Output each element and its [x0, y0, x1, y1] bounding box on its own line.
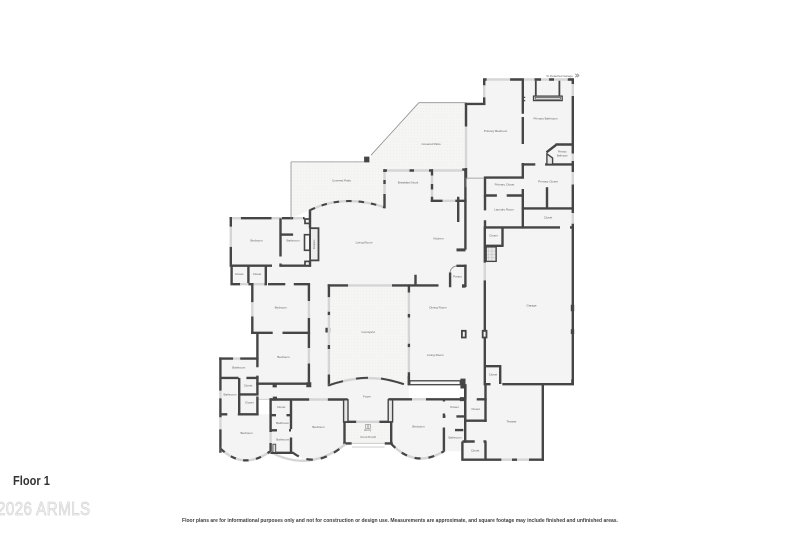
- svg-text:Closet: Closet: [253, 272, 262, 276]
- svg-text:Covered Patio: Covered Patio: [332, 179, 351, 183]
- svg-text:Closet: Closet: [245, 401, 254, 405]
- svg-text:Entry: Entry: [364, 428, 372, 432]
- svg-text:Pantry: Pantry: [453, 275, 462, 279]
- svg-text:Bathroom: Bathroom: [232, 365, 246, 369]
- svg-text:Bedroom: Bedroom: [412, 425, 425, 429]
- svg-text:Closet: Closet: [471, 448, 480, 452]
- svg-text:Bathroom: Bathroom: [276, 438, 290, 442]
- svg-text:Primary Bedroom: Primary Bedroom: [484, 129, 508, 133]
- svg-text:Theater: Theater: [506, 419, 516, 423]
- svg-text:Closet: Closet: [277, 405, 286, 409]
- svg-text:Closet: Closet: [489, 373, 498, 377]
- svg-text:Bathroom: Bathroom: [448, 436, 462, 440]
- svg-text:Closet: Closet: [544, 216, 553, 220]
- svg-text:Bedroom: Bedroom: [250, 239, 263, 243]
- svg-text:Bathroom: Bathroom: [223, 393, 237, 397]
- svg-text:Foyer: Foyer: [363, 394, 371, 398]
- svg-text:Living Room: Living Room: [427, 353, 444, 357]
- svg-text:Garage: Garage: [526, 304, 536, 308]
- svg-text:Bathroom: Bathroom: [276, 421, 290, 425]
- svg-text:Breakfast Nook: Breakfast Nook: [398, 181, 419, 185]
- svg-text:Closet: Closet: [244, 383, 253, 387]
- svg-text:Closet: Closet: [489, 233, 498, 237]
- svg-text:Bedroom: Bedroom: [277, 355, 290, 359]
- svg-text:Courtyard: Courtyard: [361, 330, 375, 334]
- svg-text:Primary Closet: Primary Closet: [538, 180, 558, 184]
- svg-text:Covered Patio: Covered Patio: [421, 142, 440, 146]
- svg-text:Bedroom: Bedroom: [275, 306, 288, 310]
- svg-text:Kitchen: Kitchen: [433, 237, 443, 241]
- svg-text:Bedroom: Bedroom: [241, 431, 254, 435]
- svg-text:Bathroom: Bathroom: [557, 155, 568, 158]
- svg-text:Front Porch: Front Porch: [360, 435, 376, 439]
- svg-text:To Detached Garage: To Detached Garage: [546, 74, 573, 78]
- svg-text:Laundry Room: Laundry Room: [494, 208, 514, 212]
- svg-text:Primary Bathroom: Primary Bathroom: [534, 117, 559, 121]
- svg-text:Closet: Closet: [235, 272, 244, 276]
- svg-text:Bedroom: Bedroom: [312, 425, 325, 429]
- svg-text:Closet: Closet: [450, 405, 459, 409]
- svg-text:Fireplace: Fireplace: [313, 239, 316, 249]
- svg-text:Living Room: Living Room: [356, 241, 373, 245]
- svg-text:Primary: Primary: [558, 151, 567, 154]
- svg-text:Bathroom: Bathroom: [286, 239, 300, 243]
- svg-text:Primary Closet: Primary Closet: [495, 182, 515, 186]
- svg-text:Dining Room: Dining Room: [429, 306, 447, 310]
- svg-text:Closet: Closet: [471, 407, 480, 411]
